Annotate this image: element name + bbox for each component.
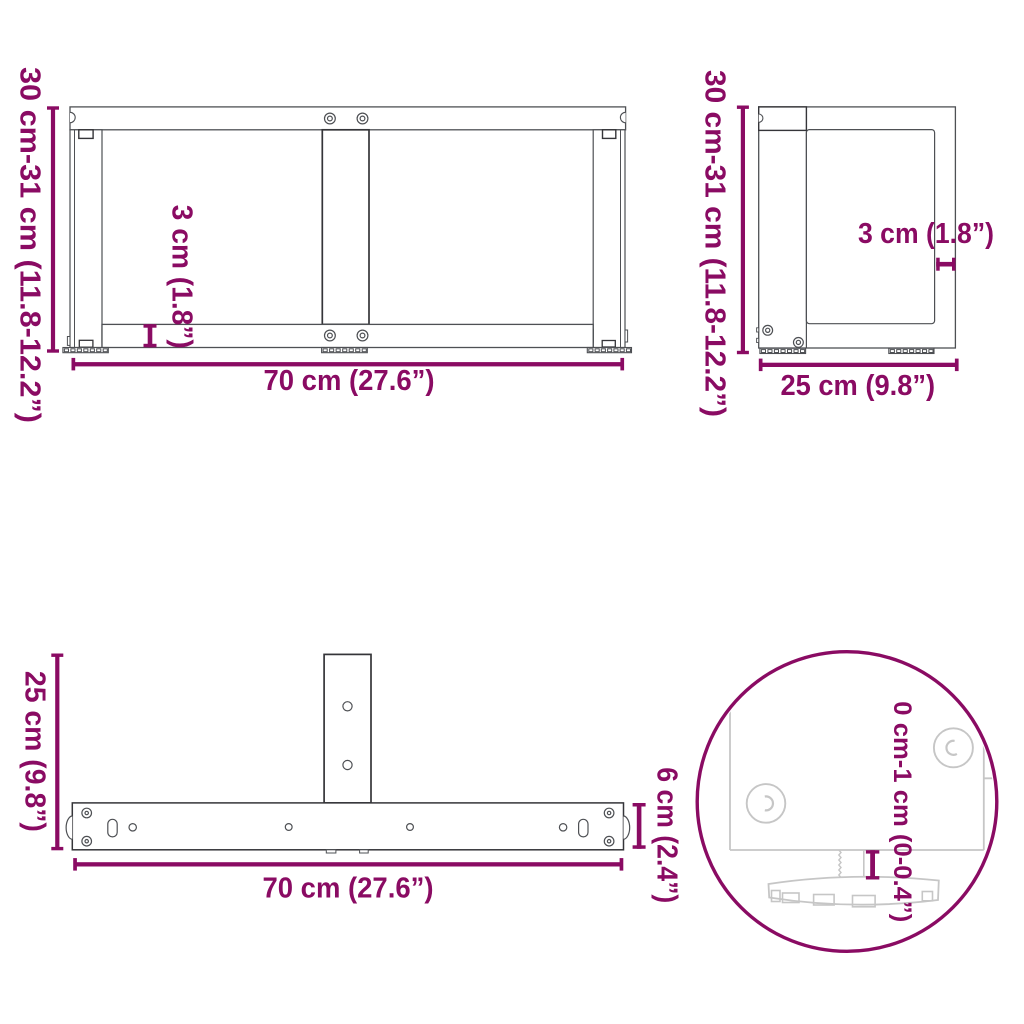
svg-text:6 cm (2.4”): 6 cm (2.4”): [651, 767, 683, 903]
svg-text:70 cm (27.6”): 70 cm (27.6”): [263, 873, 434, 905]
svg-text:25 cm (9.8”): 25 cm (9.8”): [19, 671, 51, 832]
svg-text:70 cm (27.6”): 70 cm (27.6”): [264, 365, 435, 397]
svg-text:0 cm-1 cm (0-0.4”): 0 cm-1 cm (0-0.4”): [888, 701, 916, 922]
svg-text:30 cm-31 cm (11.8-12.2”): 30 cm-31 cm (11.8-12.2”): [699, 70, 731, 417]
svg-text:3 cm (1.8”): 3 cm (1.8”): [858, 218, 994, 250]
svg-text:25 cm (9.8”): 25 cm (9.8”): [780, 370, 935, 402]
svg-text:3 cm (1.8”): 3 cm (1.8”): [166, 205, 198, 349]
svg-text:30 cm-31 cm (11.8-12.2”): 30 cm-31 cm (11.8-12.2”): [14, 67, 46, 423]
